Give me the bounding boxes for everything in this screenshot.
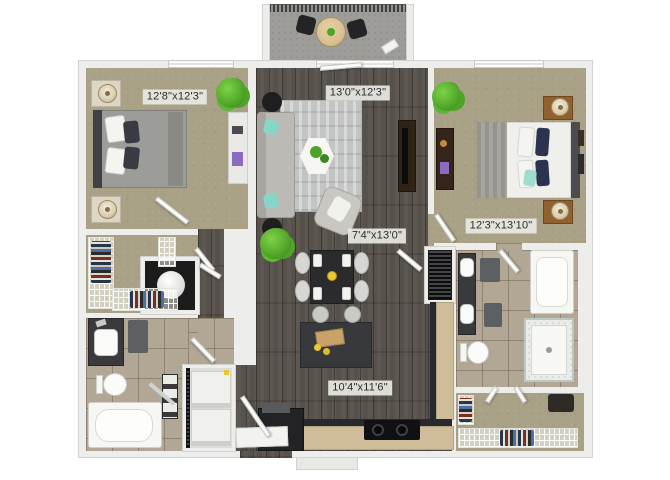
closet-1-shelf: [158, 237, 176, 267]
bathtub-basin: [536, 257, 568, 307]
place-setting: [342, 287, 351, 300]
clothes-bundle: [548, 394, 574, 412]
dresser-item: [440, 140, 447, 147]
hanging-clothes: [130, 291, 164, 308]
patio-plant: [327, 28, 335, 36]
place-setting: [313, 287, 322, 300]
bed-2-navy-pillow: [535, 128, 550, 157]
toilet: [103, 373, 127, 396]
wall-art: [578, 130, 584, 146]
place-setting: [313, 254, 322, 267]
dryer: [191, 409, 231, 446]
bath-mat: [484, 303, 502, 327]
bedroom-1-dimension-label: 12'8"x12'3": [143, 90, 207, 105]
kitchen-appliance-top: [262, 403, 290, 413]
sink: [460, 304, 474, 324]
laundry-louver-door: [186, 368, 190, 448]
lemons: [323, 348, 330, 355]
plant: [216, 78, 246, 108]
bed-1-accent-pillow: [123, 120, 140, 143]
sink: [460, 258, 474, 277]
bed-2-navy-pillow: [535, 160, 550, 187]
lamp: [98, 200, 117, 219]
bed-2-pillow: [516, 126, 535, 158]
burner: [372, 424, 384, 436]
bedroom-2-dimension-label: 12'3"x13'10": [466, 219, 537, 234]
dining-chair: [354, 252, 369, 274]
kitchen-dimension-label: 10'4"x11'6": [328, 381, 392, 396]
hvac-unit: [428, 250, 452, 300]
front-door-opening: [240, 451, 292, 458]
dining-chair: [354, 280, 369, 302]
washer: [191, 371, 231, 408]
sofa-pillow-teal: [263, 119, 280, 136]
living-room-dimension-label: 13'0"x12'3": [326, 86, 390, 101]
dining-area-dimension-label: 7'4"x13'0": [348, 229, 406, 244]
kitchen-counter-right: [436, 302, 454, 420]
laundry-item: [224, 370, 229, 375]
coffee-table-plant: [320, 154, 329, 163]
place-setting: [342, 254, 351, 267]
bed-2-teal-pillow: [523, 169, 537, 187]
toilet-tank: [460, 343, 467, 362]
lemons: [314, 344, 321, 351]
tv: [402, 128, 408, 184]
bedroom-2-door-opening: [428, 214, 434, 246]
dresser-item: [232, 152, 243, 166]
balcony-wall-left: [262, 4, 270, 62]
lamp: [98, 84, 117, 103]
lamp: [551, 202, 569, 220]
bathtub-basin: [95, 409, 153, 442]
plant: [432, 82, 461, 111]
balcony-wall-right: [406, 4, 414, 62]
bed-1-accent-pillow: [123, 146, 140, 169]
side-table: [262, 92, 282, 112]
shower-drain: [546, 347, 552, 353]
floor-plan: 12'8"x12'3" 13'0"x12'3" 12'3"x13'10" 7'4…: [0, 0, 670, 480]
centerpiece: [327, 271, 337, 281]
bath-mat: [128, 320, 148, 353]
plant: [260, 228, 291, 259]
toilet-tank: [96, 375, 103, 394]
lamp: [551, 98, 569, 116]
bar-stool: [344, 306, 361, 323]
bedroom-2-dresser: [436, 128, 454, 190]
bedroom-2-window: [474, 60, 544, 68]
sofa-pillow-teal: [263, 193, 279, 209]
bedroom-1-window: [168, 60, 234, 68]
dining-chair: [295, 280, 310, 302]
dresser-item: [440, 162, 449, 174]
bed-1-foot-runner: [168, 112, 183, 186]
sink: [94, 329, 118, 356]
bed-2-throw: [477, 122, 507, 198]
bedroom-1-dresser: [228, 112, 248, 184]
bath-mat: [480, 258, 500, 282]
dining-chair: [295, 252, 310, 274]
bed-1-headboard: [93, 110, 102, 188]
toilet: [467, 341, 489, 364]
hanging-clothes: [500, 430, 534, 446]
hanging-clothes: [459, 398, 472, 422]
hanging-clothes: [91, 241, 111, 283]
bar-stool: [312, 306, 329, 323]
dresser-item: [232, 126, 243, 134]
wall-art: [578, 154, 584, 174]
burner: [396, 424, 408, 436]
